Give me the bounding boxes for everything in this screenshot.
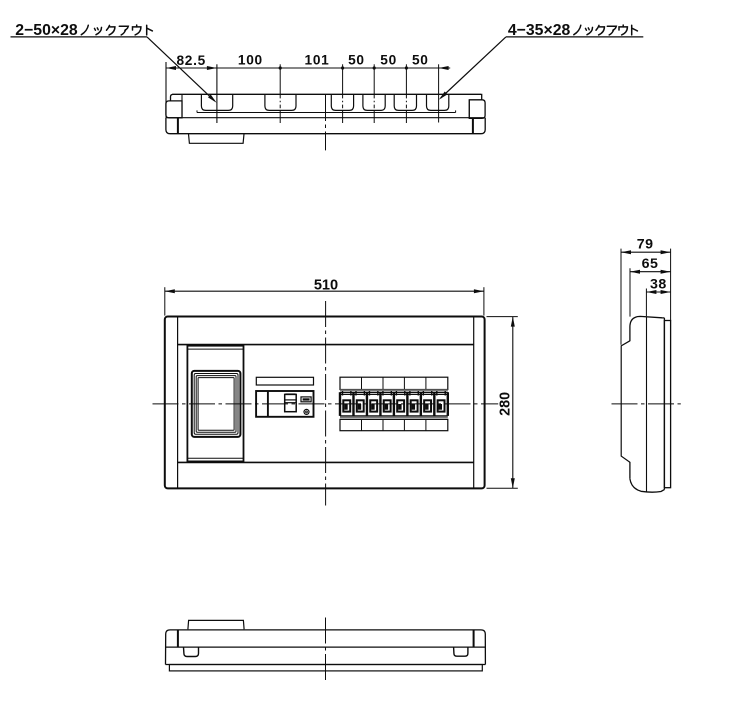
svg-text:50: 50 bbox=[348, 52, 365, 67]
svg-text:280: 280 bbox=[498, 392, 514, 416]
svg-text:101: 101 bbox=[305, 53, 330, 68]
svg-text:79: 79 bbox=[637, 236, 654, 252]
svg-text:65: 65 bbox=[642, 256, 659, 272]
svg-text:38: 38 bbox=[650, 276, 667, 292]
svg-text:100: 100 bbox=[238, 53, 263, 68]
svg-text:50: 50 bbox=[380, 52, 397, 67]
svg-text:50: 50 bbox=[412, 52, 429, 67]
svg-text:82.5: 82.5 bbox=[176, 53, 205, 68]
